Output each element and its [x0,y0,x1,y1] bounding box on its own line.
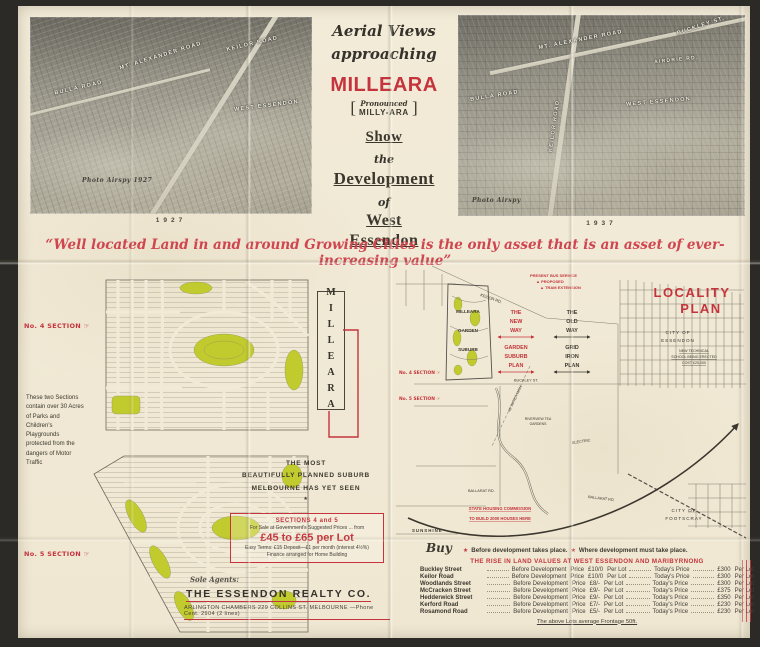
street-name: Keilor Road [420,574,484,581]
tech-school-1: NEW TECHNICAL [679,349,709,353]
road-label: WEST ESSENDON [626,96,691,108]
svg-text:SUBURB: SUBURB [504,354,527,360]
agents-block: Sole Agents: THE ESSENDON REALTY CO. ARL… [158,575,390,620]
development-heading: Development [313,169,455,189]
tagline-line2: BEAUTIFULLY PLANNED SUBURB [236,470,376,482]
photo-year-1937: 1937 [458,220,745,227]
pronunciation: [ Pronounced MILLY-ARA ] [313,98,455,118]
ballarat-rd-label-1: BALLARAT RD. [468,489,495,493]
table-row: Buckley Street Before Development Price … [420,567,754,574]
aerial-photo-1937: MT. ALEXANDER ROAD BUCKLEY ST. BULLA ROA… [458,15,745,216]
road-label: KEILOR ROAD [548,99,561,152]
sunshine-label: SUNSHINE [412,528,443,533]
tech-school-3: COST £25,000 [682,361,706,365]
locality-section4: No. 4 SECTION ☞ [399,370,440,376]
locality-title-line2: PLAN [680,301,721,316]
price-label: Price [572,588,586,595]
housing-1: STATE HOUSING COMMISSION [469,506,531,511]
today-label: Today's Price [653,581,689,588]
photo-road [127,17,288,214]
west-heading: West [313,212,455,230]
svg-text:PLAN: PLAN [509,363,524,369]
pronounced-name: MILLY-ARA [359,108,409,117]
locality-section5: No. 5 SECTION ☞ [399,396,440,402]
svg-text:GARDEN: GARDEN [504,345,527,351]
before-price: £7/- [590,602,600,609]
road-label: MT. ALEXANDER ROAD [119,41,203,72]
aerial-photo-1927: MT. ALEXANDER ROAD BULLA ROAD KEILOR ROA… [30,17,312,214]
section5-label: No. 5 SECTION ☞ [24,550,90,558]
table-row: Hedderwick Street Before Development Pri… [420,595,754,602]
street-name: McCracken Street [420,588,484,595]
today-label: Today's Price [653,595,689,602]
sole-agents-label: Sole Agents: [190,575,390,584]
estate-label-suburb: SUBURB [458,347,478,352]
red-bracket-rule [315,327,361,442]
per-lot: Per Lot [604,609,623,616]
estate-label-milleara: MILLEARA [456,309,480,314]
offer-heading: SECTIONS 4 and 5 [231,518,383,524]
road-label: BUCKLEY ST. [676,15,726,36]
city-footscray-1: CITY OF [671,508,696,513]
tagline: THE MOST BEAUTIFULLY PLANNED SUBURB MELB… [236,458,376,505]
today-label: Today's Price [653,588,689,595]
show-heading: Show [313,129,455,146]
today-price: £350 [717,595,730,602]
today-label: Today's Price [653,602,689,609]
before-label: Before Development [513,602,568,609]
street-name: Woodlands Street [420,581,484,588]
city-essendon-2: ESSENDON [661,338,695,343]
estate-label-garden: GARDEN [458,328,479,333]
script-approaching: approaching [313,43,455,66]
price-label: Price [572,595,586,602]
offer-price: £45 to £65 per Lot [231,532,383,544]
today-price: £300 [717,567,730,574]
locality-title-line1: LOCALITY [654,285,731,300]
locality-plan-map: PRESENT BUS SERVICE ▲ PROPOSED ▲ TRAM EX… [396,266,754,550]
tagline-line1: THE MOST [236,458,376,470]
svg-text:WAY: WAY [566,328,578,334]
script-aerial-views: Aerial Views [313,20,455,43]
table-row: McCracken Street Before Development Pric… [420,588,754,595]
table-row: Keilor Road Before Development Price £10… [420,574,754,581]
today-price: £300 [717,581,730,588]
of-word: of [313,196,455,209]
pronounced-word: Pronounced [359,99,409,108]
table-heading: THE RISE IN LAND VALUES AT WEST ESSENDON… [420,558,754,565]
svg-text:OLD: OLD [566,319,577,325]
bracket-open: [ [347,98,359,118]
table-footer: The above Lots average Frontage 50ft. [420,619,754,625]
parks-note: These two Sections contain over 30 Acres… [26,394,84,468]
title-panel: Aerial Views approaching MILLEARA [ Pron… [313,20,455,250]
today-price: £300 [717,574,730,581]
electric-label: ELECTRIC [572,438,591,445]
buy-word: Buy [426,541,452,555]
svg-text:GRID: GRID [565,345,579,351]
price-label: Price [570,567,584,574]
before-label: Before Development [513,609,568,616]
per-lot: Per Lot [604,588,623,595]
offer-finance: Finance arranged for Home Building [231,552,383,558]
per-lot: Per Lot [607,567,626,574]
svg-text:THE: THE [511,310,522,316]
photo-credit: Photo Airspy 1927 [82,177,152,184]
photo-year-1927: 1927 [30,217,312,224]
table-row: Rosamond Road Before Development Price £… [420,609,754,616]
before-price: £10/0 [588,567,603,574]
legend-bus: PRESENT BUS SERVICE [530,273,577,278]
agency-name: THE ESSENDON REALTY CO. [186,588,371,602]
before-label: Before Development [513,595,568,602]
tagline-star: ★ [236,495,376,505]
buy-legend: Buy ★ Before development takes place. ★ … [420,541,754,555]
before-price: £5/- [590,609,600,616]
river [496,388,548,514]
svg-text:PLAN: PLAN [565,363,580,369]
today-label: Today's Price [653,609,689,616]
per-lot: Per Lot [604,602,623,609]
legend-tram: ▲ TRAM EXTENSION [540,285,581,290]
price-offer-box: SECTIONS 4 and 5 For Sale at Government'… [230,513,384,563]
tech-school-2: SCHOOL BEING ERECTED [671,355,717,359]
city-essendon-1: CITY OF [665,330,690,335]
table-row: Kerford Road Before Development Price £7… [420,602,754,609]
before-label: Before Development [512,567,567,574]
road-label: BULLA ROAD [470,89,519,103]
plan-section-4 [106,280,308,430]
water-main-label: 40' WATER MAIN [507,385,523,413]
railway-line [628,474,746,538]
photo-credit: Photo Airspy [472,197,521,204]
road-label: WEST ESSENDON [234,99,299,113]
before-price: £10/0 [588,574,603,581]
land-values-table: Buy ★ Before development takes place. ★ … [420,541,754,625]
new-way-block: THE NEW WAY GARDEN SUBURB PLAN [498,310,534,372]
svg-text:NEW: NEW [510,319,523,325]
legend-before-text: Before development takes place. [471,547,567,554]
road-label: MT. ALEXANDER ROAD [538,29,623,51]
today-label: Today's Price [654,574,690,581]
today-price: £230 [717,609,730,616]
svg-text:IRON: IRON [565,354,579,360]
per-lot: Per Lot [607,574,626,581]
tea-gardens-2: GARDENS [530,422,548,426]
road-label: AIRDRIE RD. [654,55,699,66]
agency-address: ARLINGTON CHAMBERS 229 COLLINS ST. MELBO… [184,605,390,620]
the-word: the [313,153,455,166]
price-label: Price [572,609,586,616]
section4-label: No. 4 SECTION ☞ [24,322,90,330]
tagline-line3: MELBOURNE HAS YET SEEN [236,483,376,495]
milleara-title: MILLEARA [313,74,455,97]
street-name: Hedderwick Street [420,595,484,602]
before-price: £8/- [590,581,600,588]
road-label: KEILOR ROAD [226,35,279,53]
today-label: Today's Price [654,567,690,574]
before-label: Before Development [513,581,568,588]
fold-edge-marks [742,560,751,622]
per-lot: Per Lot [604,581,623,588]
slogan-quote: “Well located Land in and around Growing… [24,237,746,269]
table-row: Woodlands Street Before Development Pric… [420,581,754,588]
offer-subline: For Sale at Government's Suggested Price… [231,525,383,531]
price-label: Price [572,581,586,588]
tea-gardens-1: RIVERVIEW TEA [525,417,552,421]
svg-text:THE: THE [567,310,578,316]
star-icon: ★ [463,547,468,554]
keilor-rd-label: KEILOR RD. [480,292,503,304]
buckley-st-label: BUCKLEY ST. [514,379,538,383]
brochure-scan: MT. ALEXANDER ROAD BULLA ROAD KEILOR ROA… [0,0,760,647]
housing-2: TO BUILD 2000 HOUSES HERE [469,516,531,521]
price-label: Price [570,574,584,581]
street-name: Kerford Road [420,602,484,609]
svg-text:WAY: WAY [510,328,522,334]
street-name: Rosamond Road [420,609,484,616]
legend-proposed: ▲ PROPOSED [536,279,564,284]
legend-where-text: Where development must take place. [579,547,688,554]
street-name: Buckley Street [420,567,484,574]
bracket-close: ] [409,98,421,118]
before-price: £9/- [590,595,600,602]
per-lot: Per Lot [604,595,623,602]
before-label: Before Development [513,588,568,595]
today-price: £375 [717,588,730,595]
offer-terms: Easy Terms: £15 Deposit—£1 per month (in… [231,545,383,551]
price-label: Price [572,602,586,609]
ballarat-rd-label-2: BALLARAT RD. [588,495,615,502]
before-price: £9/- [590,588,600,595]
road-label: BULLA ROAD [54,80,103,97]
city-footscray-2: FOOTSCRAY [665,516,702,521]
before-label: Before Development [512,574,567,581]
star-icon: ★ [571,547,576,554]
today-price: £230 [717,602,730,609]
